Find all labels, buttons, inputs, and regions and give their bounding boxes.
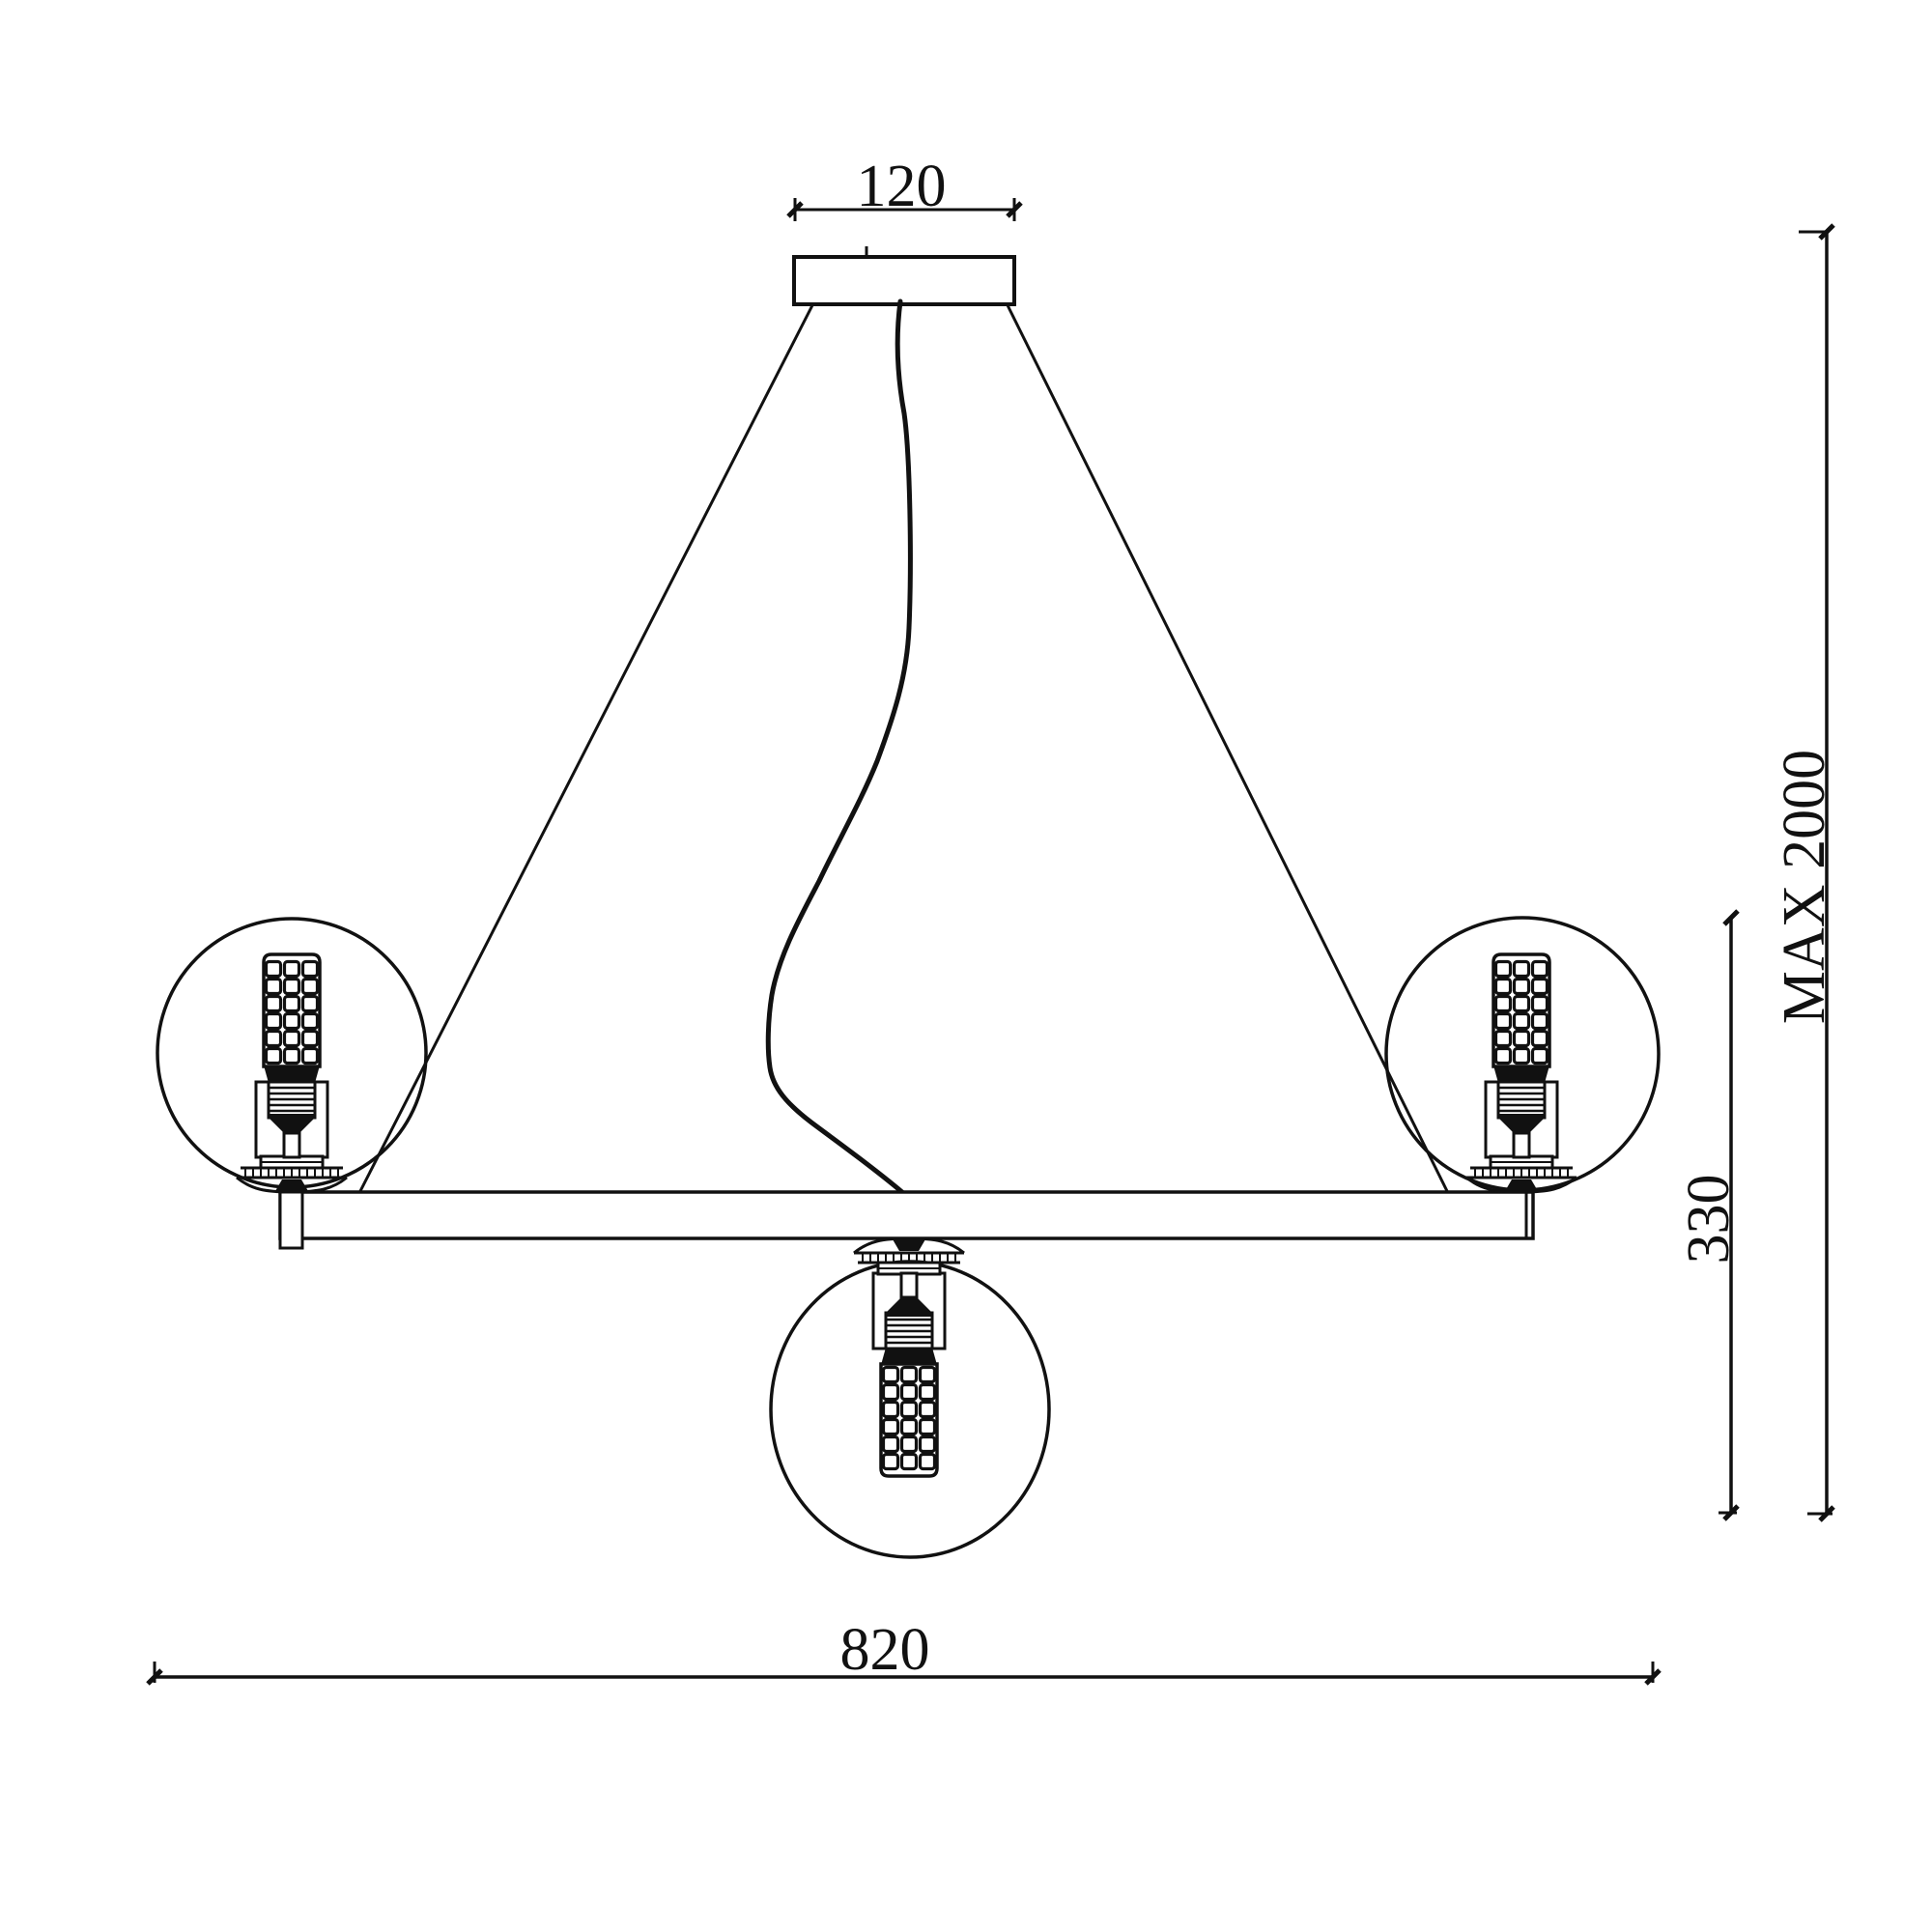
led-bulb-left [237,954,347,1192]
ceiling-canopy [794,257,1014,304]
led-bulb-bottom [854,1238,964,1476]
left-stem-stub [280,1192,302,1248]
max-height-label: MAX 2000 [1772,750,1837,1024]
canopy-width-label: 120 [857,154,947,219]
technical-drawing: 120 MAX 2000 330 [0,0,1932,1932]
suspension-cable-left [360,305,812,1191]
overall-width-label: 820 [840,1617,930,1683]
dimension-body-height: 330 [1676,911,1742,1520]
dimension-max-height: MAX 2000 [1772,225,1837,1520]
drawing-canvas: 120 MAX 2000 330 [0,0,1932,1932]
dimension-overall-width: 820 [148,1617,1660,1684]
suspension-cable-right [1008,305,1447,1191]
led-bulb-right [1466,954,1577,1192]
dimension-canopy-width: 120 [788,154,1021,221]
body-height-label: 330 [1676,1175,1742,1264]
power-cord [768,301,910,1193]
